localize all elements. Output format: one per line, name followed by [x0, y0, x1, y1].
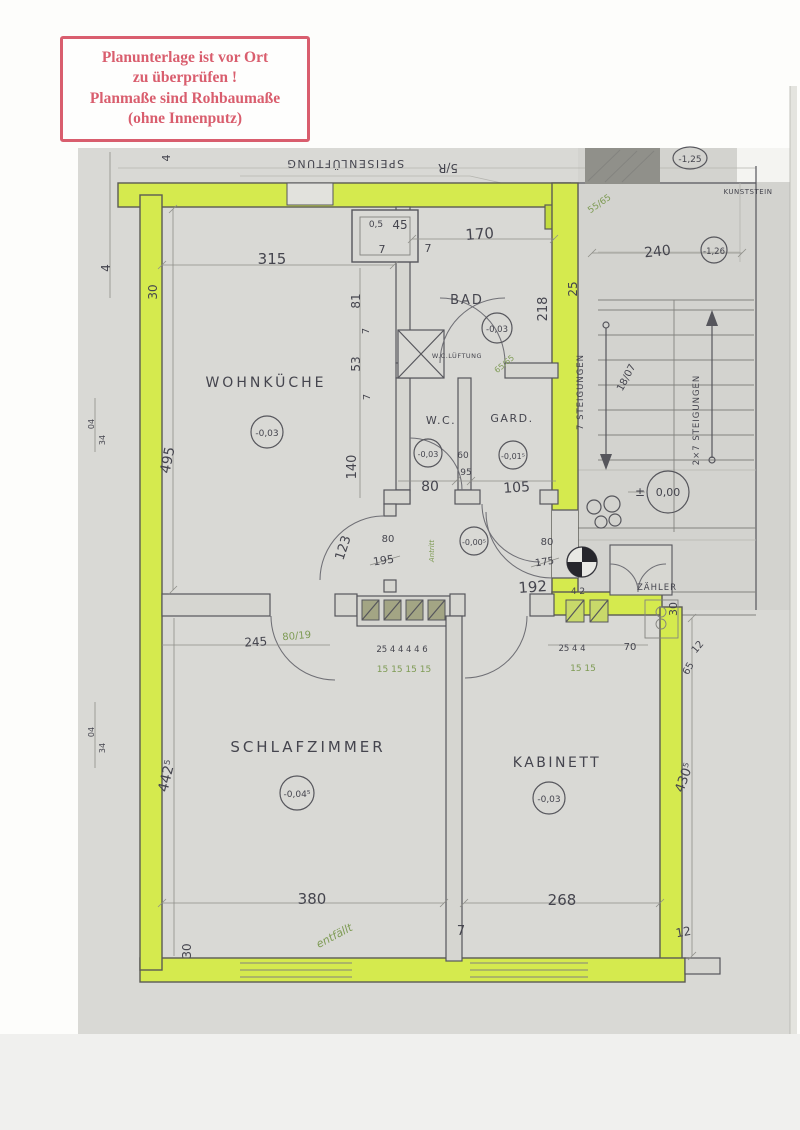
- dim-label: 30: [146, 284, 160, 299]
- duct-label: SPEISENLÜFTUNG: [286, 157, 404, 170]
- dim-label: 80: [382, 534, 395, 545]
- stamp-line: zu überprüfen !: [69, 68, 301, 88]
- dim-label: 192: [518, 577, 548, 597]
- dim-label: 140: [345, 455, 360, 480]
- wall-schlaf-kabinett: [446, 616, 462, 961]
- wall-poche: [585, 148, 660, 184]
- dim-label: 4 2: [571, 587, 585, 597]
- room-label-bad: BAD: [450, 293, 484, 308]
- svg-text:-0,04⁵: -0,04⁵: [284, 790, 311, 800]
- svg-text:-1,26: -1,26: [703, 247, 725, 257]
- wall-divider-left: [162, 594, 270, 616]
- room-label-garderobe: GARD.: [490, 412, 533, 425]
- approval-stamp: Planunterlage ist vor Ort zu überprüfen …: [60, 36, 310, 142]
- note-wc-lueftung: W.C.LÜFTUNG: [432, 351, 482, 360]
- dim-label: 7: [362, 394, 373, 400]
- wall-recess: [287, 183, 333, 205]
- dim-label: 25 4 4 4 4 6: [376, 645, 427, 655]
- dim-label: 30: [180, 943, 194, 958]
- room-label-wohnkueche: WOHNKÜCHE: [205, 373, 326, 391]
- wall-top: [118, 183, 570, 207]
- dim-label: 105: [503, 479, 531, 497]
- dim-label: 95: [460, 468, 471, 478]
- paper-corner: [737, 148, 792, 182]
- room-label-schlafzimmer: SCHLAFZIMMER: [230, 738, 385, 756]
- stair-flight1-label: 7 STEIGUNGEN: [576, 354, 586, 430]
- paper-bottom-margin: [0, 1034, 800, 1130]
- dim-label: 380: [298, 890, 327, 908]
- svg-text:-0,03: -0,03: [418, 450, 439, 459]
- wall-bottom-right-step: [685, 958, 720, 974]
- dim-label: 34: [98, 743, 107, 753]
- dim-label: 80: [541, 537, 554, 548]
- dim-label: 7: [457, 924, 465, 939]
- wall-vorraum-jamb: [384, 580, 396, 592]
- svg-text:-0,03: -0,03: [486, 325, 508, 335]
- dim-label: 04: [87, 727, 96, 737]
- dim-label: 7: [361, 328, 372, 334]
- dim-label: 25 4 4: [558, 644, 585, 654]
- floor-plan-svg: WOHNKÜCHE BAD W.C. GARD. SCHLAFZIMMER KA…: [0, 0, 800, 1130]
- dim-label: 53: [349, 356, 363, 371]
- dim-label: 4: [99, 264, 113, 272]
- wall-divider-jamb: [335, 594, 357, 616]
- paper-darker-zone: [578, 148, 792, 610]
- dim-label: 12: [675, 924, 692, 940]
- meter-label: ZÄHLER: [637, 582, 677, 593]
- stair-flight2-label: 2×7 STEIGUNGEN: [692, 375, 702, 466]
- wall-bottom: [140, 958, 685, 982]
- svg-text:-0,00⁵: -0,00⁵: [462, 538, 486, 547]
- room-label-wc: W.C.: [426, 414, 456, 427]
- dim-label: 0,5: [369, 220, 383, 230]
- stair-material-label: KUNSTSTEIN: [724, 188, 773, 196]
- paper-edge: [790, 86, 797, 1036]
- wall-divider-jamb: [450, 594, 465, 616]
- svg-text:-0,03: -0,03: [537, 795, 560, 805]
- dim-label: 15 15 15 15: [377, 665, 431, 675]
- dim-label: 240: [643, 243, 671, 262]
- dim-label: 268: [548, 891, 577, 909]
- stamp-line: (ohne Innenputz): [69, 109, 301, 129]
- dim-label: 170: [465, 224, 495, 244]
- wall-bad-bottom-b: [505, 363, 558, 378]
- dim-label: 34: [98, 435, 107, 445]
- stamp-line: Planunterlage ist vor Ort: [69, 48, 301, 68]
- svg-text:-0,01⁵: -0,01⁵: [501, 452, 525, 461]
- stair-ref-label: 5/R: [438, 161, 458, 175]
- wall-divider-right: [530, 594, 554, 616]
- stamp-line: Planmaße sind Rohbaumaße: [69, 89, 301, 109]
- dim-label: 81: [349, 293, 363, 308]
- dim-label: 7: [425, 242, 432, 255]
- wall-left: [140, 195, 162, 970]
- scanned-floor-plan-page: Planunterlage ist vor Ort zu überprüfen …: [0, 0, 800, 1130]
- dim-label: 15 15: [570, 664, 596, 674]
- room-label-kabinett: KABINETT: [513, 755, 601, 771]
- dim-label: 7: [379, 243, 386, 256]
- svg-text:-1,25: -1,25: [678, 155, 701, 165]
- dim-label: 04: [87, 419, 96, 429]
- svg-text:-0,03: -0,03: [255, 429, 278, 439]
- dim-label: 4: [160, 155, 173, 162]
- dim-label: 70: [624, 642, 637, 653]
- note-antritt: Antritt: [428, 540, 436, 564]
- dim-label: 25: [566, 281, 580, 296]
- dim-label: 45: [392, 218, 407, 232]
- benchmark-icon: [567, 547, 597, 577]
- dim-label: 30: [667, 602, 680, 616]
- dim-label: 245: [244, 634, 268, 649]
- svg-text:0,00: 0,00: [656, 486, 681, 499]
- dim-label: 60: [457, 451, 469, 461]
- plus-minus-sign: ±: [635, 485, 645, 499]
- dim-label: 315: [258, 250, 287, 268]
- dim-label: 218: [536, 297, 551, 322]
- wall-wc-left: [396, 378, 410, 490]
- dim-label: 80: [421, 479, 439, 495]
